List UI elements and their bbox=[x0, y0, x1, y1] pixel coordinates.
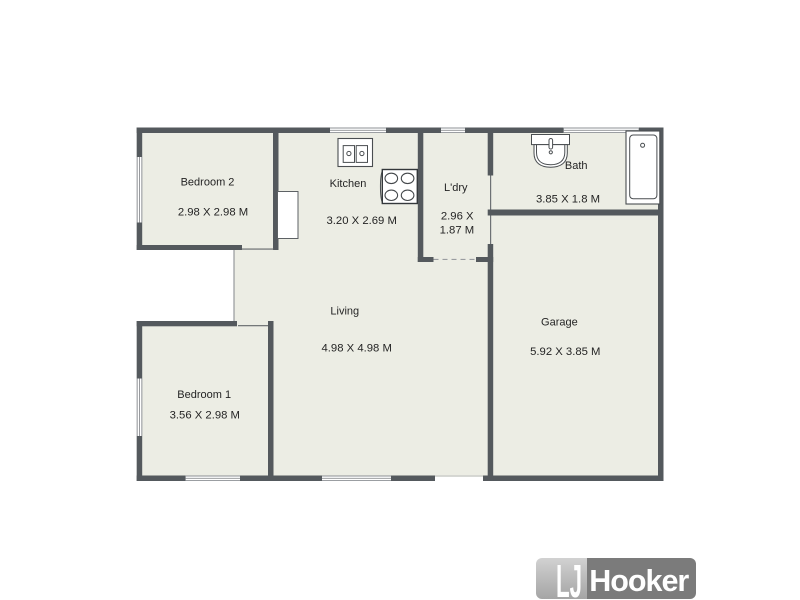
svg-text:Bedroom 1: Bedroom 1 bbox=[177, 389, 231, 401]
svg-text:Living: Living bbox=[330, 305, 359, 317]
svg-text:1.87 M: 1.87 M bbox=[440, 225, 475, 237]
svg-text:5.92 X 3.85 M: 5.92 X 3.85 M bbox=[530, 346, 600, 358]
svg-text:Garage: Garage bbox=[541, 317, 578, 329]
svg-text:2.98 X 2.98 M: 2.98 X 2.98 M bbox=[178, 206, 248, 218]
svg-text:3.20 X 2.69 M: 3.20 X 2.69 M bbox=[327, 215, 397, 227]
svg-text:2.96 X: 2.96 X bbox=[441, 211, 474, 223]
svg-text:Bedroom 2: Bedroom 2 bbox=[181, 177, 235, 189]
svg-text:3.56 X 2.98 M: 3.56 X 2.98 M bbox=[170, 410, 240, 422]
svg-text:Bath: Bath bbox=[565, 160, 588, 172]
svg-text:4.98 X 4.98 M: 4.98 X 4.98 M bbox=[322, 342, 392, 354]
svg-text:Kitchen: Kitchen bbox=[330, 178, 367, 190]
svg-text:3.85 X 1.8 M: 3.85 X 1.8 M bbox=[536, 193, 600, 205]
svg-text:L'dry: L'dry bbox=[444, 182, 468, 194]
